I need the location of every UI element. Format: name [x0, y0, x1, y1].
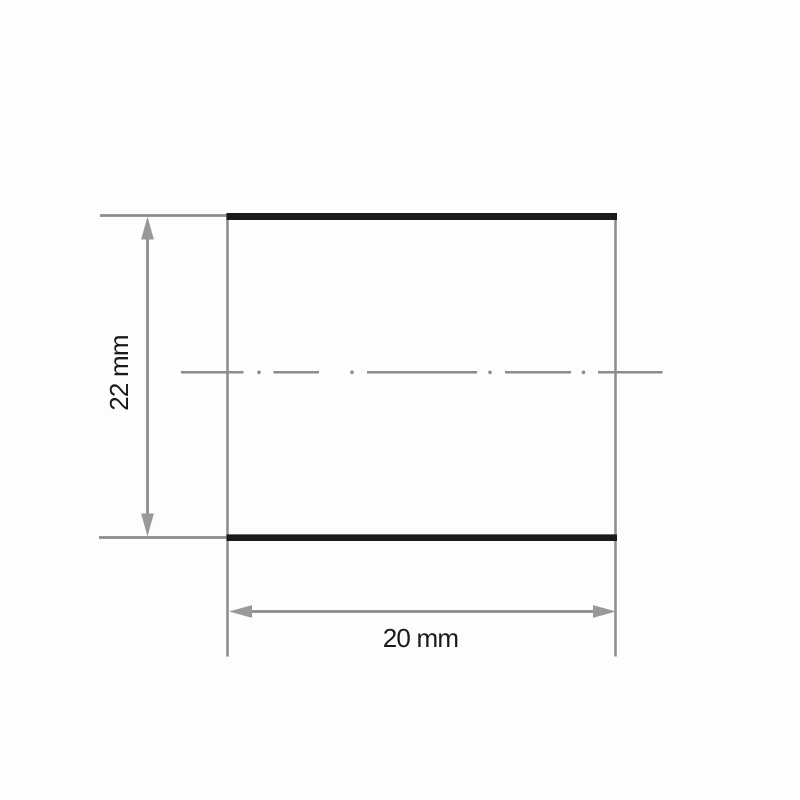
svg-text:20 mm: 20 mm [383, 623, 458, 653]
svg-text:22 mm: 22 mm [104, 335, 134, 410]
